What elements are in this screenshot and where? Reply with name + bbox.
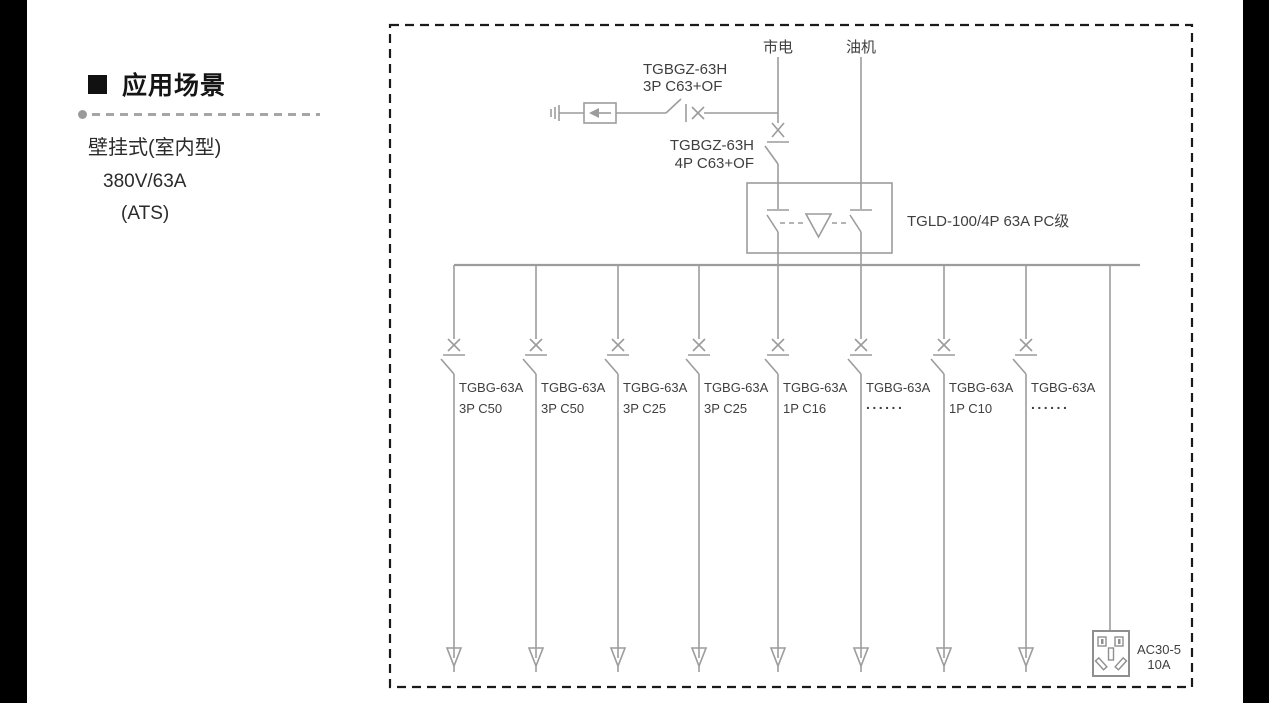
spd-icon <box>584 103 616 123</box>
ground-icon <box>551 105 559 121</box>
spd-breaker-icon <box>666 99 704 122</box>
feeder-branch-4: TGBG-63A 3P C25 <box>686 265 769 672</box>
incoming-breaker-model: TGBGZ-63H <box>670 137 754 154</box>
feeder-branch-8: TGBG-63A ...... <box>1013 265 1096 672</box>
generator-label: 油机 <box>846 39 876 56</box>
branch-breaker-icon <box>931 339 955 374</box>
branch-breaker-icon <box>765 339 789 374</box>
socket-rating-label: 10A <box>1147 657 1170 672</box>
branch-spec-label: 3P C50 <box>541 401 584 416</box>
branch-breaker-icon <box>848 339 872 374</box>
branch-model-label: TGBG-63A <box>459 380 524 395</box>
spd-branch: TGBGZ-63H 3P C63+OF <box>551 61 778 123</box>
feeder-branch-2: TGBG-63A 3P C50 <box>523 265 606 672</box>
ats-mechanism-icon <box>806 214 831 237</box>
feeder-branch-6: TGBG-63A ...... <box>848 265 931 672</box>
branch-breaker-icon <box>1013 339 1037 374</box>
mains-label: 市电 <box>763 39 793 56</box>
diagram-dashed-border <box>390 25 1192 687</box>
incoming-breaker-icon <box>765 123 789 164</box>
branch-model-label: TGBG-63A <box>704 380 769 395</box>
branch-model-label: TGBG-63A <box>866 380 931 395</box>
socket-model-label: AC30-5 <box>1137 642 1181 657</box>
spd-breaker-model: TGBGZ-63H <box>643 61 727 78</box>
socket-icon <box>1093 631 1129 676</box>
branch-spec-label: 3P C25 <box>704 401 747 416</box>
branch-spec-label: 3P C50 <box>459 401 502 416</box>
branch-model-label: TGBG-63A <box>783 380 848 395</box>
branch-breaker-icon <box>441 339 465 374</box>
feeder-branch-1: TGBG-63A 3P C50 <box>441 265 524 672</box>
spd-breaker-spec: 3P C63+OF <box>643 78 722 95</box>
feeder-branch-7: TGBG-63A 1P C10 <box>931 265 1014 672</box>
socket-feeder: AC30-5 10A <box>1093 265 1181 676</box>
ats-generator-contact-icon <box>850 210 872 232</box>
branch-spec-label: ...... <box>1031 396 1069 412</box>
ats-switch: TGLD-100/4P 63A PC级 <box>747 183 1069 265</box>
branch-breaker-icon <box>605 339 629 374</box>
branch-spec-label: 1P C16 <box>783 401 826 416</box>
branch-model-label: TGBG-63A <box>623 380 688 395</box>
feeder-branch-3: TGBG-63A 3P C25 <box>605 265 688 672</box>
branch-spec-label: 3P C25 <box>623 401 666 416</box>
branch-model-label: TGBG-63A <box>1031 380 1096 395</box>
branch-spec-label: ...... <box>866 396 904 412</box>
ats-label: TGLD-100/4P 63A PC级 <box>907 213 1069 230</box>
page: 应用场景 壁挂式(室内型) 380V/63A (ATS) 市电 TGBGZ-63… <box>0 0 1269 721</box>
branch-breaker-icon <box>686 339 710 374</box>
feeder-branch-5: TGBG-63A 1P C16 <box>765 265 848 672</box>
branch-spec-label: 1P C10 <box>949 401 992 416</box>
incoming-breaker-spec: 4P C63+OF <box>675 155 754 172</box>
branch-model-label: TGBG-63A <box>541 380 606 395</box>
single-line-diagram: 市电 TGBGZ-63H 4P C63+OF 油机 <box>0 0 1269 721</box>
branch-model-label: TGBG-63A <box>949 380 1014 395</box>
branch-breaker-icon <box>523 339 547 374</box>
ats-mains-contact-icon <box>767 210 789 232</box>
